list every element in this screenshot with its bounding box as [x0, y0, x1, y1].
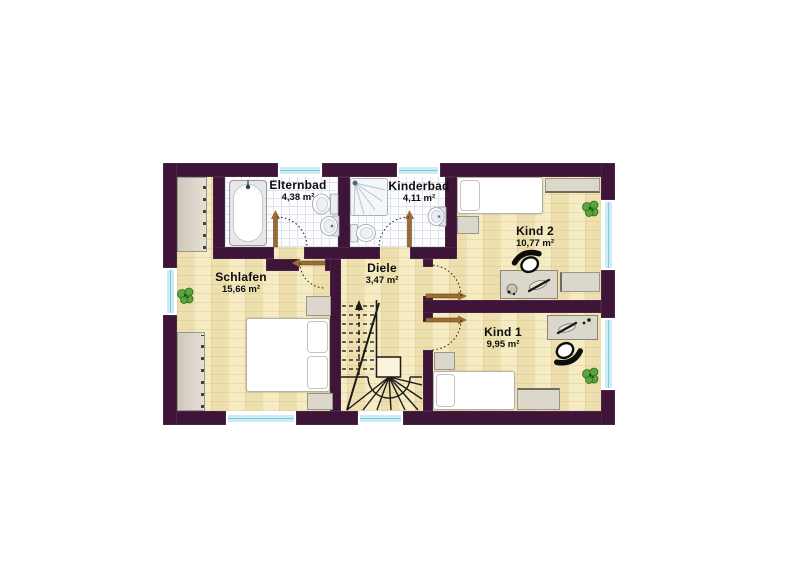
wardrobe: [177, 177, 207, 252]
outer-wall-right: [601, 270, 615, 318]
window-schlafen-south: [226, 413, 296, 424]
nightstand: [457, 216, 479, 234]
window-stair-south: [358, 413, 403, 424]
sideboard: [560, 272, 600, 292]
outer-wall-top: [322, 163, 397, 177]
outer-wall-left: [163, 163, 177, 268]
shelf: [545, 178, 600, 193]
pillow: [460, 180, 480, 211]
wall-schlafen-diele: [266, 259, 299, 271]
window-kinderbad: [397, 165, 440, 176]
outer-wall-bottom: [403, 411, 615, 425]
desk: [547, 315, 598, 340]
wall-bath-south: [410, 247, 457, 259]
nightstand: [434, 352, 455, 370]
desk: [500, 270, 558, 299]
pillow: [307, 321, 328, 353]
outer-wall-right: [601, 163, 615, 200]
nightstand: [306, 296, 331, 316]
dresser: [517, 388, 560, 410]
pillow: [436, 374, 455, 407]
wall-stair-east: [423, 350, 433, 411]
wall-kind1-kind2: [423, 300, 601, 313]
outer-wall-top: [440, 163, 615, 177]
nightstand: [307, 393, 333, 410]
wall-bath-south: [304, 247, 380, 259]
outer-wall-bottom: [296, 411, 358, 425]
pillow: [307, 356, 328, 389]
wall-bath-south: [213, 247, 274, 259]
window-kind2-east: [603, 200, 614, 270]
wardrobe: [177, 332, 205, 411]
window-schlafen-west: [165, 268, 176, 315]
floor-plan: Elternbad 4,38 m² Kinderbad 4,11 m² Kind…: [163, 163, 615, 425]
window-kind1-east: [603, 318, 614, 390]
outer-wall-left: [163, 315, 177, 425]
shower: [350, 178, 388, 216]
outer-wall-top: [163, 163, 278, 177]
window-elternbad: [278, 165, 322, 176]
wall-stub-kind2-door: [423, 259, 433, 267]
outer-wall-right: [601, 390, 615, 425]
bathtub: [229, 180, 267, 246]
floor-plan-canvas: Elternbad 4,38 m² Kinderbad 4,11 m² Kind…: [0, 0, 800, 565]
wall-stair-west: [330, 259, 341, 411]
